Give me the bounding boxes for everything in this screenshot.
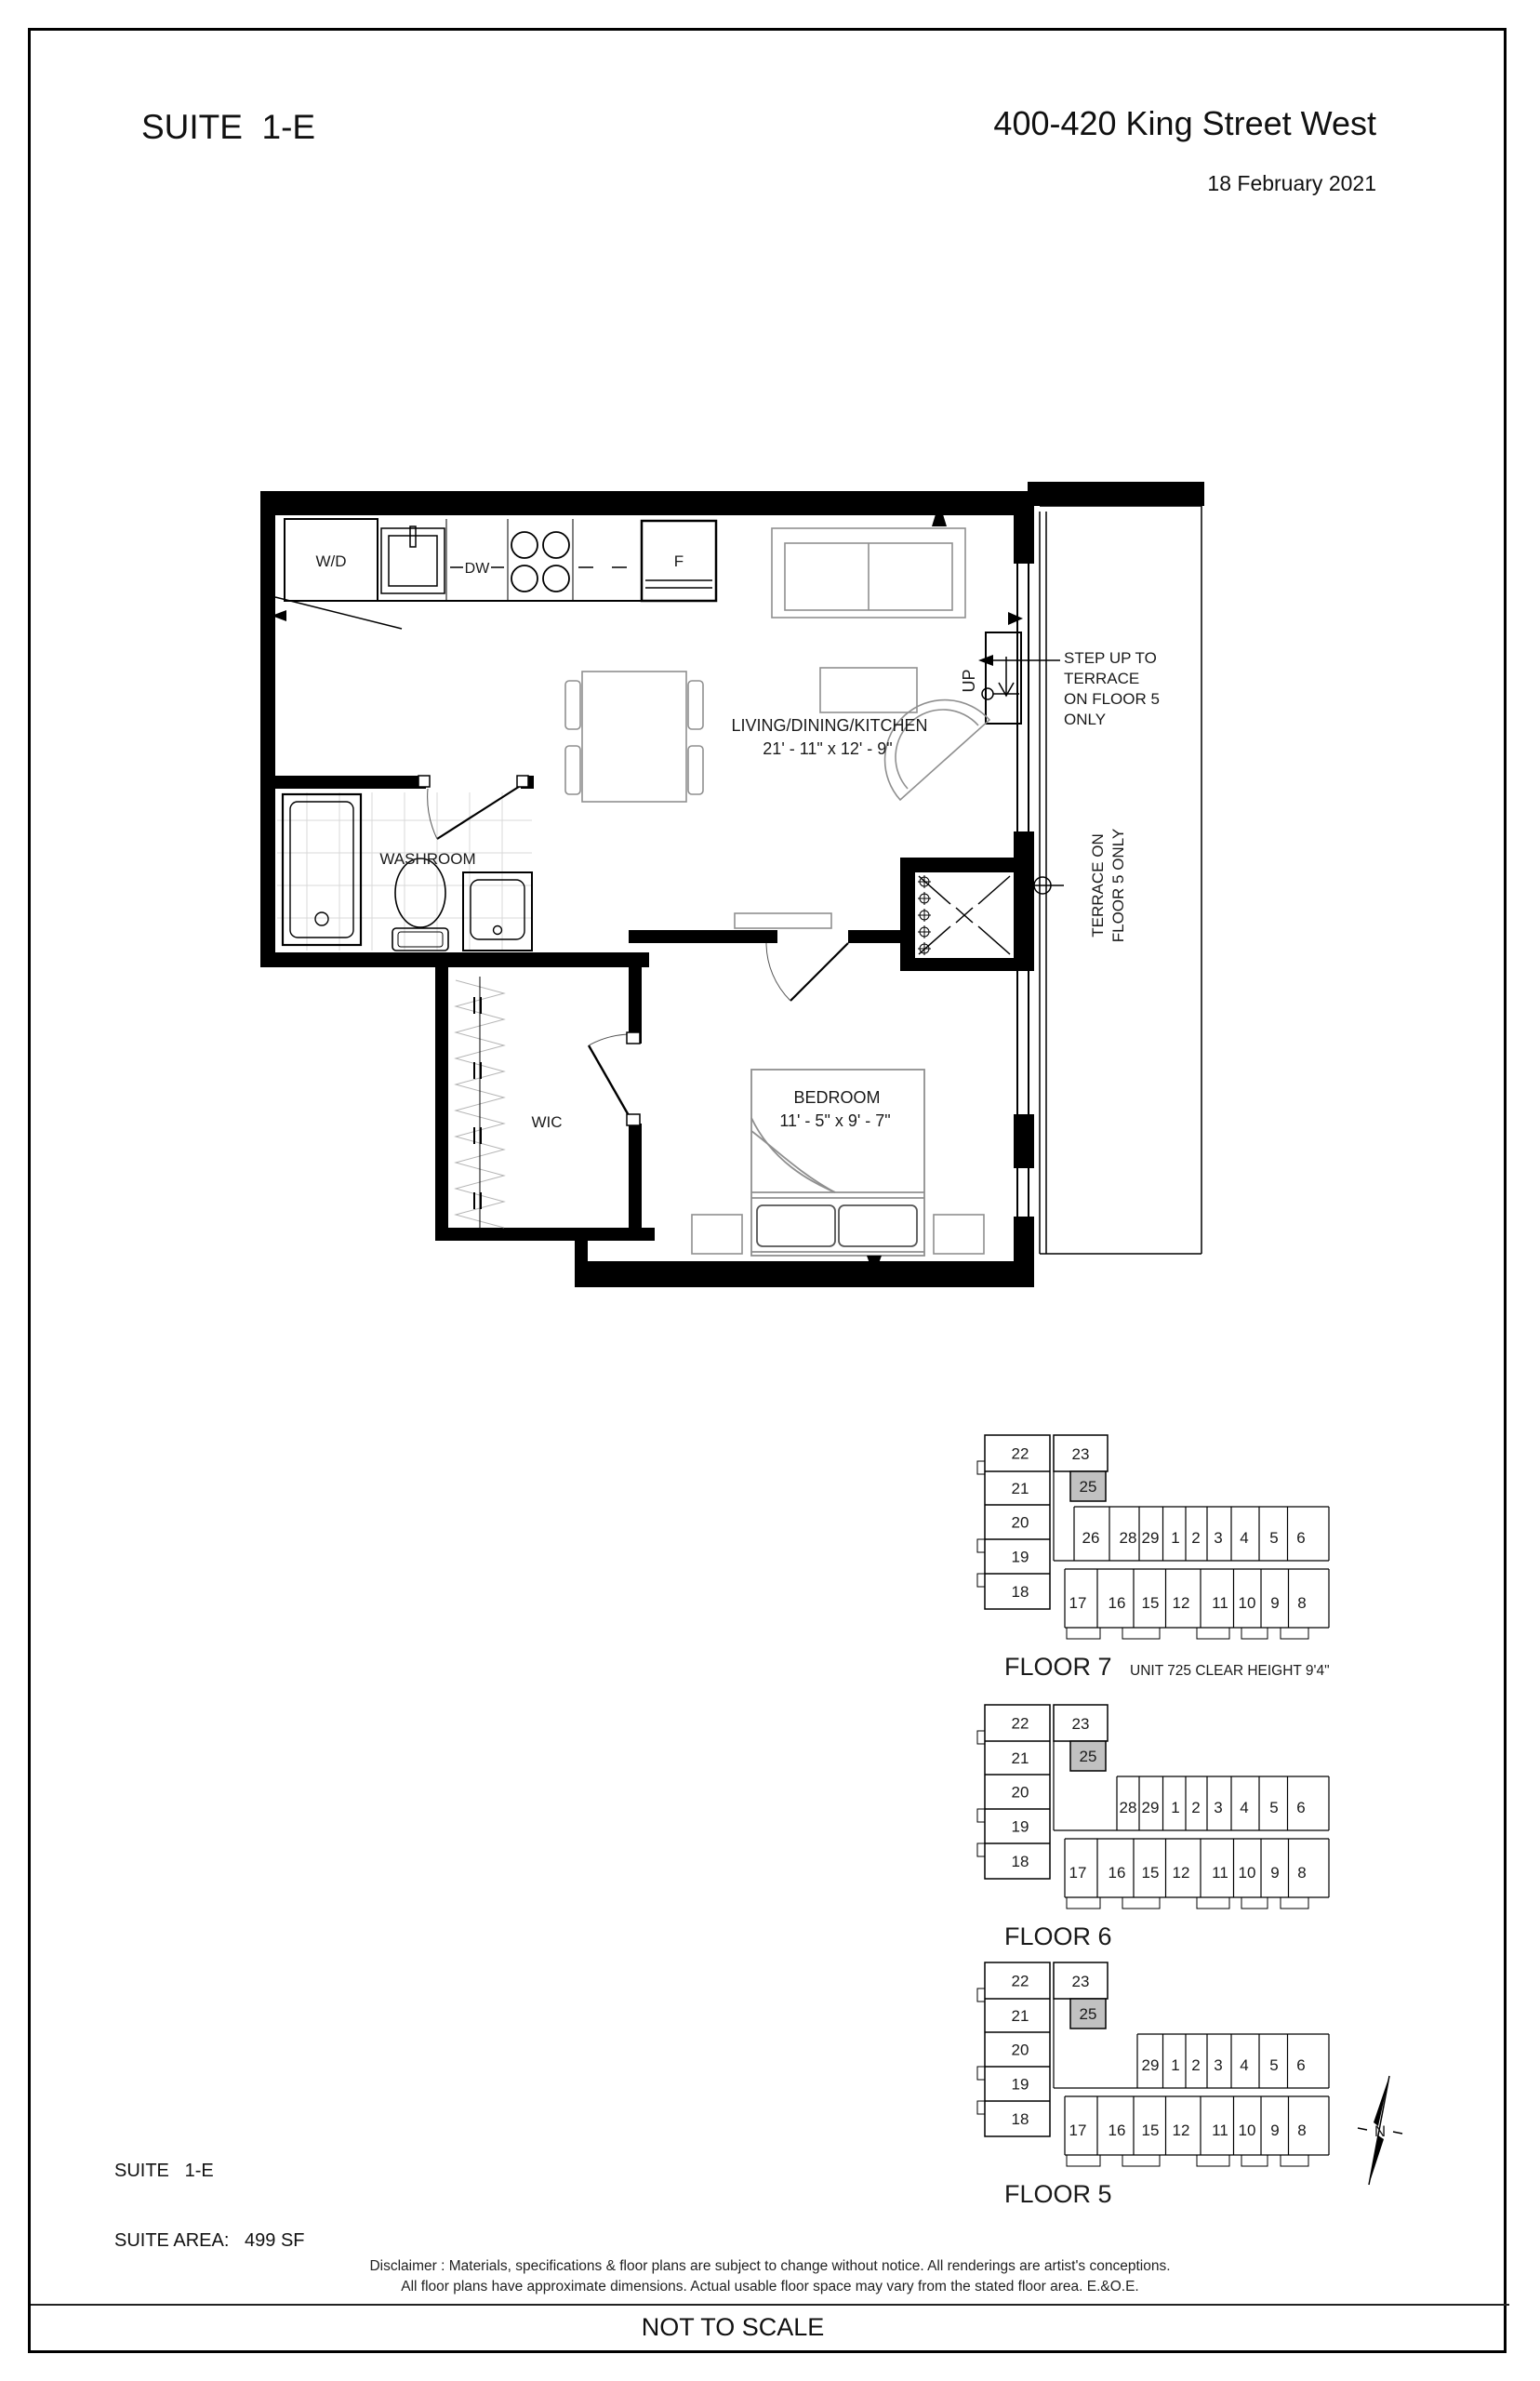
keyplan-unit-6: 6 xyxy=(1296,1529,1305,1547)
terrace-note-line1: TERRACE ON xyxy=(1089,833,1107,937)
keyplan-unit-12: 12 xyxy=(1173,1864,1190,1882)
north-arrow: N xyxy=(1350,2072,1415,2188)
bedroom-label: BEDROOM xyxy=(793,1088,880,1107)
washroom: WASHROOM xyxy=(277,776,532,951)
keyplan-unit-28: 28 xyxy=(1120,1529,1137,1547)
keyplan-unit-15: 15 xyxy=(1142,1864,1160,1882)
keyplan-unit-15: 15 xyxy=(1142,2122,1160,2139)
keyplan-unit-20: 20 xyxy=(1012,1514,1029,1532)
pillow-right xyxy=(839,1205,917,1246)
north-label: N xyxy=(1374,2122,1386,2140)
keyplan-unit-2: 2 xyxy=(1191,1529,1200,1547)
keyplan-unit-9: 9 xyxy=(1270,1864,1279,1882)
step-note-line1: STEP UP TO xyxy=(1064,649,1157,667)
keyplan-unit-23: 23 xyxy=(1072,1445,1090,1463)
keyplan-unit-21: 21 xyxy=(1012,1749,1029,1767)
keyplan-floor-label: FLOOR 6 xyxy=(1004,1922,1112,1950)
keyplan-unit-3: 3 xyxy=(1214,2056,1222,2074)
disclaimer-line1: Disclaimer : Materials, specifications &… xyxy=(31,2256,1509,2277)
keyplan-unit-22: 22 xyxy=(1012,1715,1029,1733)
keyplan-unit-22: 22 xyxy=(1012,1973,1029,1990)
keyplan-floor-6: 22212019182325282912345617161512111098FL… xyxy=(974,1697,1401,1967)
keyplan-unit-16: 16 xyxy=(1109,1594,1126,1612)
toilet xyxy=(392,858,448,951)
page-title: SUITE 1-E xyxy=(141,108,315,147)
keyplan-unit-25: 25 xyxy=(1080,1478,1097,1496)
keyplan-unit-3: 3 xyxy=(1214,1529,1222,1547)
keyplan-unit-4: 4 xyxy=(1240,1799,1248,1816)
step-note-line4: ONLY xyxy=(1064,711,1106,728)
walls xyxy=(260,482,1204,1287)
keyplan-unit-5: 5 xyxy=(1269,2056,1278,2074)
keyplan-unit-17: 17 xyxy=(1069,2122,1087,2139)
keyplan-unit-17: 17 xyxy=(1069,1594,1087,1612)
living-dims: 21' - 11" x 12' - 9" xyxy=(763,739,892,758)
keyplan-unit-18: 18 xyxy=(1012,2110,1029,2128)
dining-table xyxy=(565,672,703,802)
keyplan-unit-2: 2 xyxy=(1191,2056,1200,2074)
keyplan-unit-10: 10 xyxy=(1239,1594,1256,1612)
keyplan-unit-29: 29 xyxy=(1142,2056,1160,2074)
keyplan-unit-4: 4 xyxy=(1240,2056,1248,2074)
keyplan-unit-10: 10 xyxy=(1239,1864,1256,1882)
nightstand-left xyxy=(692,1215,742,1254)
plan-date: 18 February 2021 xyxy=(1207,171,1376,196)
keyplan-unit-29: 29 xyxy=(1142,1799,1160,1816)
lounge-chair xyxy=(885,700,989,800)
keyplan-unit-19: 19 xyxy=(1012,2076,1029,2094)
wd-label: W/D xyxy=(315,552,346,570)
bathtub xyxy=(283,794,361,945)
disclaimer-line2: All floor plans have approximate dimensi… xyxy=(31,2277,1509,2297)
keyplan-unit-11: 11 xyxy=(1212,1864,1228,1882)
keyplan-unit-18: 18 xyxy=(1012,1583,1029,1601)
terrace-step: UP xyxy=(960,632,1021,724)
keyplan-drawing: 222120191823252912345617161512111098FLOO… xyxy=(974,1955,1401,2225)
keyplan-unit-5: 5 xyxy=(1269,1799,1278,1816)
kitchen: W/D DW F xyxy=(285,519,716,601)
nightstand-right xyxy=(934,1215,984,1254)
keyplan-annotation: UNIT 725 CLEAR HEIGHT 9'4" xyxy=(1130,1663,1330,1679)
keyplan-floor-label: FLOOR 5 xyxy=(1004,2180,1112,2208)
keyplan-drawing: 22212019182325282912345617161512111098FL… xyxy=(974,1697,1401,1967)
living-label: LIVING/DINING/KITCHEN xyxy=(731,716,927,735)
step-note-line3: ON FLOOR 5 xyxy=(1064,690,1160,708)
washroom-door xyxy=(418,776,528,839)
keyplan-floor-label: FLOOR 7 xyxy=(1004,1653,1112,1681)
bedroom-dims: 11' - 5" x 9' - 7" xyxy=(779,1111,890,1130)
wic-label: WIC xyxy=(531,1113,562,1131)
elevator xyxy=(900,858,1030,971)
sofa xyxy=(772,528,965,618)
scale-note: NOT TO SCALE xyxy=(31,2313,1435,2342)
building-address: 400-420 King Street West xyxy=(993,104,1376,143)
marker-arrow-right xyxy=(1008,612,1023,625)
keyplan-unit-11: 11 xyxy=(1212,2122,1228,2139)
keyplan-unit-8: 8 xyxy=(1297,2122,1306,2139)
keyplan-unit-18: 18 xyxy=(1012,1853,1029,1870)
keyplan-unit-6: 6 xyxy=(1296,1799,1305,1816)
keyplan-floor-7: 2221201918232526282912345617161512111098… xyxy=(974,1428,1401,1697)
keyplan-unit-23: 23 xyxy=(1072,1973,1090,1990)
keyplan-unit-4: 4 xyxy=(1240,1529,1248,1547)
terrace: TERRACE ON FLOOR 5 ONLY xyxy=(1021,506,1201,1254)
keyplan-unit-15: 15 xyxy=(1142,1594,1160,1612)
keyplan-unit-21: 21 xyxy=(1012,1480,1029,1497)
keyplan-unit-10: 10 xyxy=(1239,2122,1256,2139)
disclaimer: Disclaimer : Materials, specifications &… xyxy=(31,2256,1509,2297)
up-label: UP xyxy=(960,669,978,692)
keyplan-drawing: 2221201918232526282912345617161512111098… xyxy=(974,1428,1401,1697)
pillow-left xyxy=(757,1205,835,1246)
washroom-label: WASHROOM xyxy=(379,850,475,868)
keyplan-unit-25: 25 xyxy=(1080,2005,1097,2023)
keyplan-unit-9: 9 xyxy=(1270,2122,1279,2139)
coffee-table xyxy=(820,668,917,712)
suite-info-line1: SUITE 1-E xyxy=(114,2160,305,2183)
dishwasher-label: DW xyxy=(465,561,491,577)
keyplan-unit-8: 8 xyxy=(1297,1594,1306,1612)
bedroom-door xyxy=(766,943,848,1001)
footer-divider xyxy=(31,2304,1509,2306)
keyplan-unit-5: 5 xyxy=(1269,1529,1278,1547)
keyplan-unit-19: 19 xyxy=(1012,1818,1029,1836)
suite-info-line2: SUITE AREA: 499 SF xyxy=(114,2229,305,2253)
keyplan-unit-8: 8 xyxy=(1297,1864,1306,1882)
floor-plan-drawing: TERRACE ON FLOOR 5 ONLY UP STEP UP TO TE… xyxy=(251,474,1218,1311)
keyplan-floor-5: 222120191823252912345617161512111098FLOO… xyxy=(974,1955,1401,2225)
vanity-sink xyxy=(463,872,532,951)
keyplan-unit-12: 12 xyxy=(1173,1594,1190,1612)
keyplan-unit-3: 3 xyxy=(1214,1799,1222,1816)
keyplan-unit-29: 29 xyxy=(1142,1529,1160,1547)
keyplan-unit-1: 1 xyxy=(1171,1799,1179,1816)
keyplan-unit-2: 2 xyxy=(1191,1799,1200,1816)
main-floor-plan: TERRACE ON FLOOR 5 ONLY UP STEP UP TO TE… xyxy=(251,474,1218,1311)
keyplan-unit-1: 1 xyxy=(1171,2056,1179,2074)
keyplan-unit-20: 20 xyxy=(1012,2042,1029,2059)
step-note-line2: TERRACE xyxy=(1064,670,1139,687)
keyplan-unit-11: 11 xyxy=(1212,1594,1228,1612)
floor-plan-page: SUITE 1-E 400-420 King Street West 18 Fe… xyxy=(0,0,1540,2381)
keyplan-unit-12: 12 xyxy=(1173,2122,1190,2139)
keyplan-unit-16: 16 xyxy=(1109,1864,1126,1882)
entry-door xyxy=(272,597,402,629)
wic-door xyxy=(589,1032,640,1125)
fridge-label: F xyxy=(674,552,684,570)
keyplan-unit-1: 1 xyxy=(1171,1529,1179,1547)
keyplan-unit-21: 21 xyxy=(1012,2007,1029,2025)
kitchen-sink xyxy=(381,526,445,593)
keyplan-unit-6: 6 xyxy=(1296,2056,1305,2074)
console-table xyxy=(735,913,831,928)
walk-in-closet: WIC xyxy=(456,977,640,1241)
keyplan-unit-20: 20 xyxy=(1012,1784,1029,1802)
keyplan-unit-9: 9 xyxy=(1270,1594,1279,1612)
keyplan-unit-23: 23 xyxy=(1072,1715,1090,1733)
keyplan-unit-25: 25 xyxy=(1080,1748,1097,1765)
terrace-note-line2: FLOOR 5 ONLY xyxy=(1109,829,1127,943)
keyplan-unit-26: 26 xyxy=(1082,1529,1100,1547)
keyplan-unit-17: 17 xyxy=(1069,1864,1087,1882)
keyplan-unit-28: 28 xyxy=(1120,1799,1137,1816)
stove-burners xyxy=(508,519,573,601)
keyplan-unit-22: 22 xyxy=(1012,1445,1029,1463)
keyplan-unit-16: 16 xyxy=(1109,2122,1126,2139)
step-note: STEP UP TO TERRACE ON FLOOR 5 ONLY xyxy=(978,649,1160,728)
keyplan-unit-19: 19 xyxy=(1012,1549,1029,1566)
